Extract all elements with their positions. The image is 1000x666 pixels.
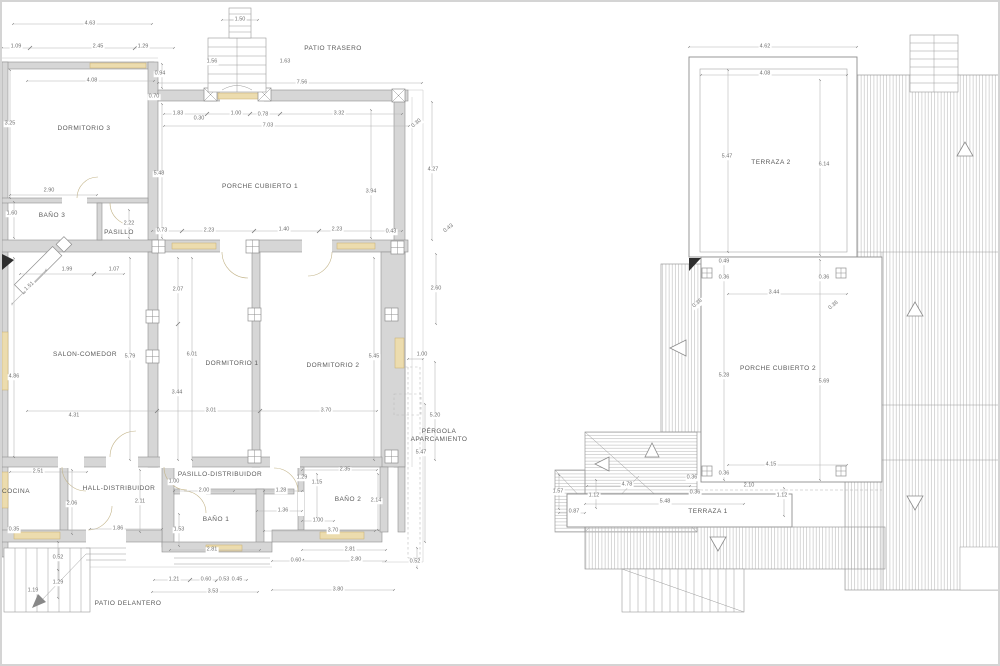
dimension-label: 1.60 <box>6 211 19 217</box>
dimension-label: 1.12 <box>776 493 789 499</box>
dimension-label: 4.63 <box>84 21 97 27</box>
dimension-label: 0.87 <box>568 509 581 515</box>
dimension-label: 1.29 <box>296 475 309 481</box>
dimension-label: 3.80 <box>332 587 345 593</box>
dimension-label: 5.48 <box>659 499 672 505</box>
dimension-label: 3.44 <box>171 390 184 396</box>
dimension-label: 2.23 <box>203 228 216 234</box>
dimension-label: 1.51 <box>23 281 36 294</box>
dimension-label: 0.35 <box>8 527 21 533</box>
dimension-label: 3.25 <box>4 121 17 127</box>
dimension-label: 7.03 <box>262 123 275 129</box>
dimension-label: 0.60 <box>200 577 213 583</box>
dimension-label: 0.36 <box>718 471 731 477</box>
dimension-label: 1.00 <box>312 518 325 524</box>
dimension-label: 1.29 <box>137 44 150 50</box>
room-label: TERRAZA 2 <box>751 159 790 167</box>
dimension-label: 1.00 <box>416 352 429 358</box>
dimension-label: 1.86 <box>112 526 125 532</box>
room-label: BAÑO 1 <box>203 516 230 524</box>
floor-plan-sheet: DORMITORIO 3PATIO TRASEROPORCHE CUBIERTO… <box>0 0 1000 666</box>
dimension-label: 2.35 <box>339 467 352 473</box>
dimension-label: 0.36 <box>689 490 702 496</box>
dimension-label: 5.20 <box>429 413 442 419</box>
dimension-label: 1.56 <box>206 59 219 65</box>
dimension-label: 4.08 <box>759 71 772 77</box>
room-label: PASILLO <box>104 229 134 237</box>
room-label: TERRAZA 1 <box>688 508 727 516</box>
dimension-label: 1.83 <box>172 111 185 117</box>
room-label: PÉRGOLA APARCAMIENTO <box>411 428 468 444</box>
room-label: PATIO TRASERO <box>304 45 362 53</box>
dimension-label: 4.62 <box>759 44 772 50</box>
dimension-label: 2.45 <box>92 44 105 50</box>
dimension-label: 1.09 <box>10 44 23 50</box>
dimension-label: 0.52 <box>409 559 422 565</box>
dimension-label: 2.51 <box>32 469 45 475</box>
dimension-label: 1.36 <box>277 508 290 514</box>
dimension-label: 2.80 <box>350 557 363 563</box>
dimension-label: 3.53 <box>207 589 220 595</box>
dimension-label: 0.73 <box>156 228 169 234</box>
dimension-label: 0.49 <box>718 259 731 265</box>
dimension-label: 3.01 <box>205 408 218 414</box>
room-label: PASILLO-DISTRIBUIDOR <box>178 471 262 479</box>
dimension-label: 1.19 <box>27 588 40 594</box>
dimension-label: 1.53 <box>173 527 186 533</box>
room-label: PATIO DELANTERO <box>95 600 162 608</box>
dimension-label: 1.00 <box>230 111 243 117</box>
dimension-label: 1.15 <box>311 480 324 486</box>
dimension-label: 0.78 <box>257 112 270 118</box>
dimension-label: 4.15 <box>765 462 778 468</box>
dimension-label: 0.30 <box>410 118 423 130</box>
room-label: BAÑO 2 <box>335 496 362 504</box>
dimension-label: 0.60 <box>290 558 303 564</box>
dimension-label: 4.31 <box>68 413 81 419</box>
dimension-label: 2.22 <box>123 221 136 227</box>
dimension-label: 2.00 <box>198 488 211 494</box>
dimension-label: 1.00 <box>168 479 181 485</box>
dimension-label: 1.50 <box>234 17 247 23</box>
dimension-label: 1.57 <box>552 489 565 495</box>
dimension-label: 5.45 <box>368 354 381 360</box>
dimension-label: 1.28 <box>275 488 288 494</box>
plan-labels-layer: DORMITORIO 3PATIO TRASEROPORCHE CUBIERTO… <box>2 2 998 664</box>
dimension-label: 6.01 <box>186 352 199 358</box>
dimension-label: 4.86 <box>8 374 21 380</box>
room-label: BAÑO 3 <box>39 212 66 220</box>
dimension-label: 1.40 <box>278 227 291 233</box>
dimension-label: 6.14 <box>818 162 831 168</box>
dimension-label: 5.28 <box>718 373 731 379</box>
dimension-label: 4.27 <box>427 167 440 173</box>
dimension-label: 0.36 <box>686 475 699 481</box>
dimension-label: 2.23 <box>331 227 344 233</box>
dimension-label: 0.36 <box>827 300 840 312</box>
dimension-label: 4.08 <box>86 78 99 84</box>
dimension-label: 3.70 <box>327 528 340 534</box>
dimension-label: 1.21 <box>168 577 181 583</box>
dimension-label: 2.10 <box>743 483 756 489</box>
dimension-label: 1.07 <box>108 267 121 273</box>
dimension-label: 0.30 <box>193 116 206 122</box>
dimension-label: 5.47 <box>415 450 428 456</box>
dimension-label: 2.81 <box>344 547 357 553</box>
dimension-label: 0.43 <box>385 229 398 235</box>
room-label: SALON-COMEDOR <box>53 351 117 359</box>
dimension-label: 7.56 <box>296 80 309 86</box>
dimension-label: 2.60 <box>430 286 443 292</box>
dimension-label: 2.14 <box>370 498 383 504</box>
dimension-label: 1.99 <box>61 267 74 273</box>
dimension-label: 0.43 <box>442 223 455 235</box>
dimension-label: 2.06 <box>66 501 79 507</box>
dimension-label: 2.07 <box>172 287 185 293</box>
dimension-label: 0.36 <box>691 298 704 310</box>
dimension-label: 4.78 <box>621 482 634 488</box>
dimension-label: 3.70 <box>320 408 333 414</box>
dimension-label: 5.79 <box>124 354 137 360</box>
room-label: DORMITORIO 1 <box>206 360 259 368</box>
dimension-label: 3.94 <box>365 189 378 195</box>
room-label: PORCHE CUBIERTO 1 <box>222 183 298 191</box>
dimension-label: 2.81 <box>206 547 219 553</box>
dimension-label: 5.69 <box>818 379 831 385</box>
room-label: COCINA <box>2 488 30 496</box>
dimension-label: 3.32 <box>333 111 346 117</box>
dimension-label: 0.94 <box>154 71 167 77</box>
room-label: HALL-DISTRIBUIDOR <box>83 485 156 493</box>
dimension-label: 0.52 <box>52 555 65 561</box>
dimension-label: 5.48 <box>153 171 166 177</box>
room-label: DORMITORIO 3 <box>58 125 111 133</box>
dimension-label: 0.36 <box>818 275 831 281</box>
dimension-label: 0.53 <box>218 577 231 583</box>
dimension-label: 3.44 <box>768 290 781 296</box>
dimension-label: 2.90 <box>43 188 56 194</box>
dimension-label: 2.11 <box>134 499 146 505</box>
dimension-label: 1.12 <box>588 493 601 499</box>
dimension-label: 0.70 <box>148 94 161 100</box>
dimension-label: 5.47 <box>721 154 734 160</box>
room-label: DORMITORIO 2 <box>307 362 360 370</box>
room-label: PORCHE CUBIERTO 2 <box>740 365 816 373</box>
dimension-label: 0.36 <box>718 275 731 281</box>
dimension-label: 1.29 <box>52 580 65 586</box>
dimension-label: 1.63 <box>279 59 292 65</box>
dimension-label: 0.45 <box>231 577 244 583</box>
